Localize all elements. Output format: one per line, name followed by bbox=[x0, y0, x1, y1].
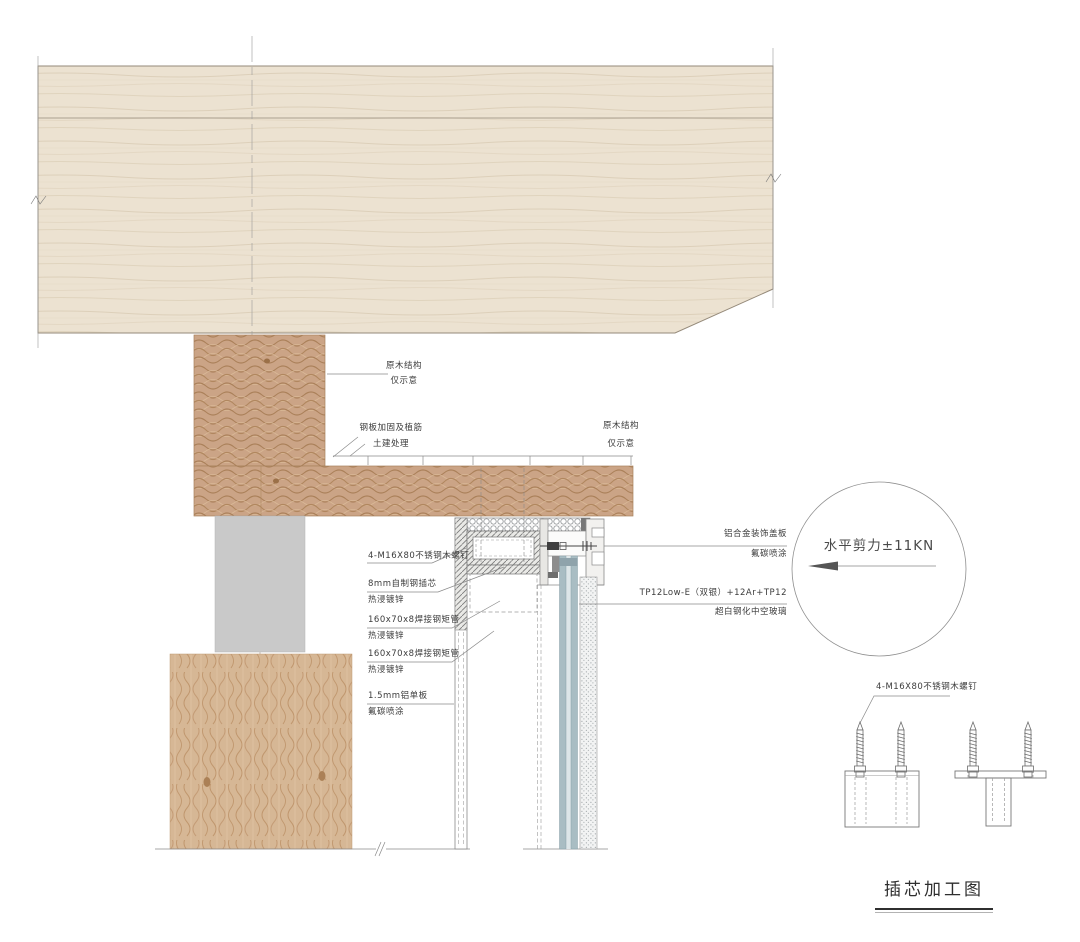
detail-drawing-svg bbox=[0, 0, 1080, 942]
label-alu-panel-line2: 氟碳喷涂 bbox=[368, 707, 404, 718]
label-steel-core-line1: 8mm自制钢插芯 bbox=[368, 579, 436, 590]
label-tube1-line1: 160x70x8焊接钢矩管 bbox=[368, 615, 460, 626]
label-tube2-line1: 160x70x8焊接钢矩管 bbox=[368, 649, 460, 660]
window-assembly bbox=[455, 468, 604, 849]
label-shear-force: 水平剪力±11KN bbox=[809, 541, 949, 552]
glass-unit bbox=[560, 556, 578, 849]
drawing-title: 插芯加工图 bbox=[875, 885, 993, 896]
drawing-canvas: 原木结构 仅示意 钢板加固及植筋 土建处理 原木结构 仅示意 4-M16X80不… bbox=[0, 0, 1080, 942]
insert-tee-right bbox=[955, 771, 1046, 826]
label-timber-top-line2: 仅示意 bbox=[374, 376, 434, 387]
timber-sill bbox=[194, 466, 633, 516]
wood-knot bbox=[319, 771, 326, 781]
wood-knot bbox=[273, 479, 279, 484]
aluminium-panel-strip bbox=[455, 518, 467, 849]
label-timber-right-line1: 原木结构 bbox=[591, 421, 651, 432]
label-tube1-line2: 热浸镀锌 bbox=[368, 631, 404, 642]
glass-spacer bbox=[560, 558, 578, 566]
timber-base bbox=[170, 654, 352, 849]
label-timber-right-line2: 仅示意 bbox=[591, 439, 651, 450]
sealant-column bbox=[580, 577, 597, 849]
label-tube2-line2: 热浸镀锌 bbox=[368, 665, 404, 676]
label-steel-plate-line1: 钢板加固及植筋 bbox=[351, 423, 431, 434]
label-screw-detail: 4-M16X80不锈钢木螺钉 bbox=[876, 682, 977, 693]
shear-arrow-icon bbox=[808, 562, 838, 571]
label-alu-panel-line1: 1.5mm铝单板 bbox=[368, 691, 428, 702]
rebar-ticks bbox=[368, 456, 631, 465]
timber-beam bbox=[38, 66, 773, 333]
label-glazing-line1: TP12Low-E（双银）+12Ar+TP12 bbox=[600, 588, 787, 599]
screw-fabrication-detail bbox=[845, 722, 1046, 827]
wood-knot bbox=[204, 777, 211, 787]
label-screw-left: 4-M16X80不锈钢木螺钉 bbox=[368, 551, 469, 562]
steel-tube bbox=[467, 531, 540, 565]
insert-box-left bbox=[845, 771, 919, 827]
wood-knot bbox=[264, 359, 270, 364]
title-underline bbox=[875, 909, 993, 913]
break-symbol-ground bbox=[375, 842, 385, 856]
label-glazing-line2: 超白钢化中空玻璃 bbox=[600, 607, 787, 618]
insulation-strip bbox=[455, 518, 590, 531]
shear-force-bubble bbox=[792, 482, 966, 656]
label-steel-core-line2: 热浸镀锌 bbox=[368, 595, 404, 606]
label-timber-top-line1: 原木结构 bbox=[374, 361, 434, 372]
hidden-tube-outline bbox=[470, 574, 537, 612]
label-cover-plate-line2: 氟碳喷涂 bbox=[640, 549, 787, 560]
grey-column bbox=[215, 516, 305, 652]
label-steel-plate-line2: 土建处理 bbox=[351, 439, 431, 450]
steel-plate-lower bbox=[467, 565, 540, 574]
label-cover-plate-line1: 铝合金装饰盖板 bbox=[640, 529, 787, 540]
glazing-bead bbox=[548, 572, 558, 578]
